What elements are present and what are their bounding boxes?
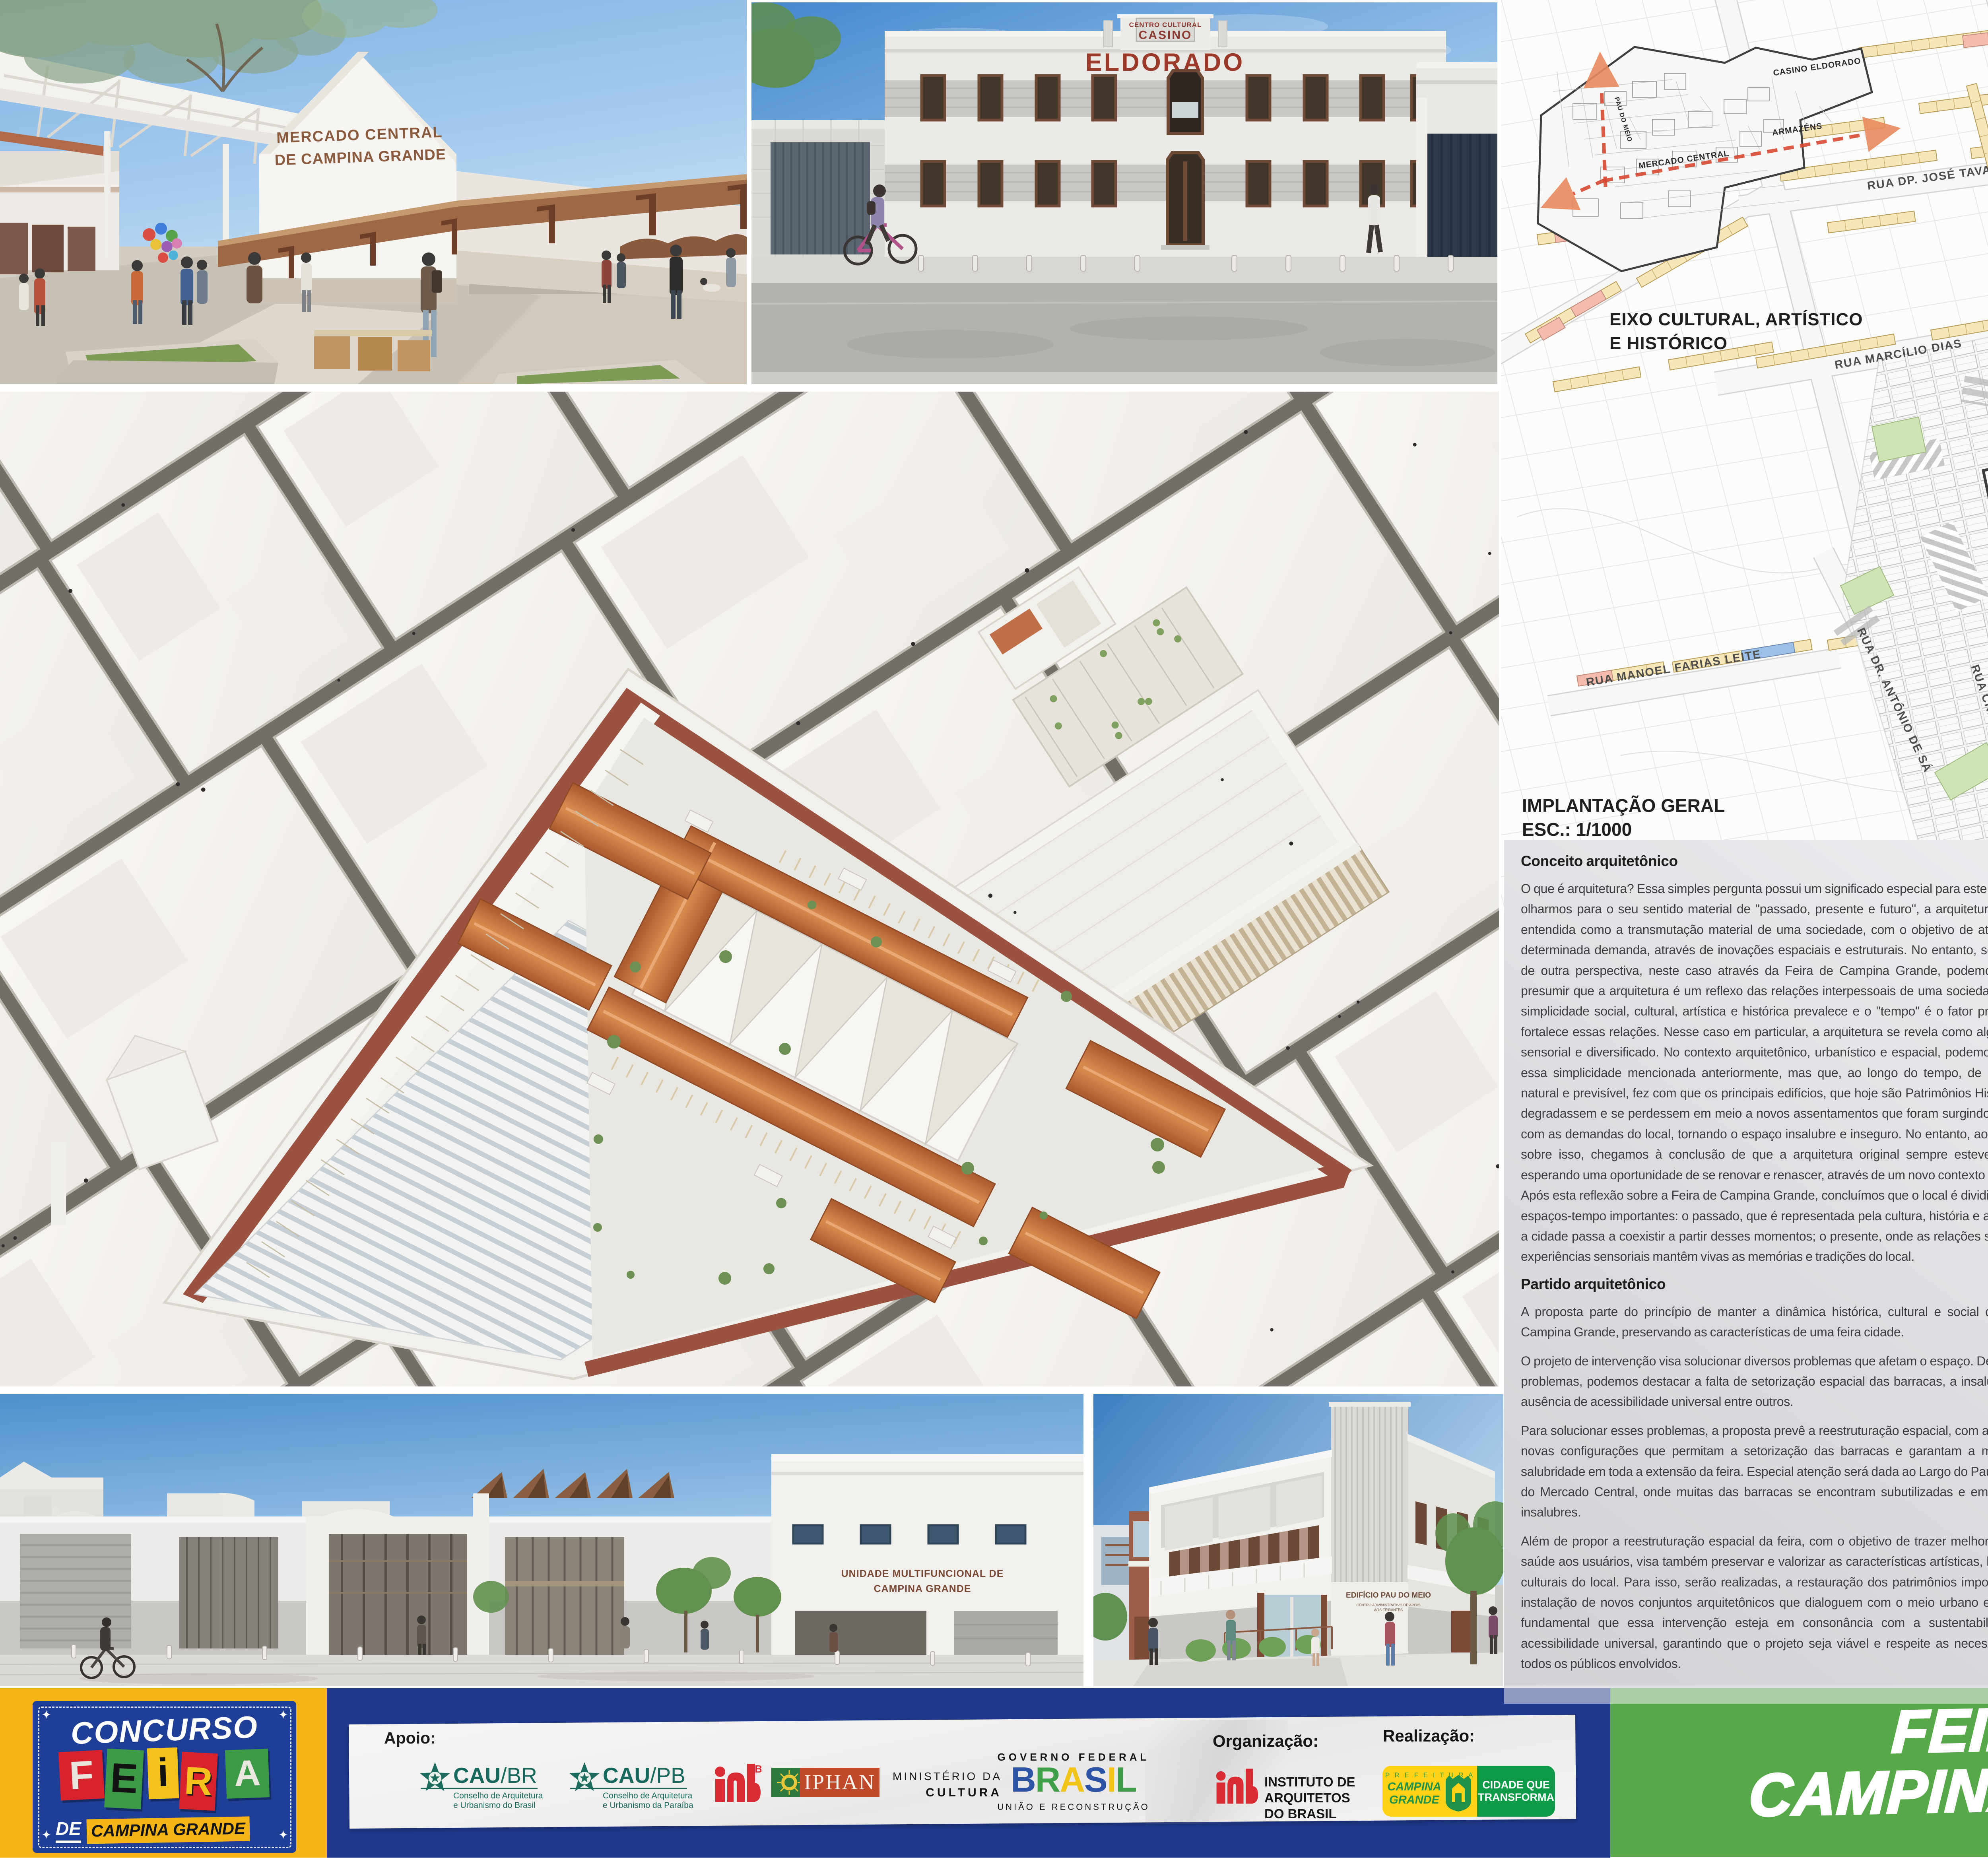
svg-text:e Urbanismo do Brasil: e Urbanismo do Brasil [453,1801,536,1809]
svg-text:ESC.: 1/1000: ESC.: 1/1000 [1522,819,1632,840]
svg-text:e Urbanismo da Paraíba: e Urbanismo da Paraíba [603,1801,693,1809]
svg-text:UNIDADE MULTIFUNCIONAL DE: UNIDADE MULTIFUNCIONAL DE [841,1568,1004,1579]
svg-text:Conselho de Arquitetura: Conselho de Arquitetura [453,1791,543,1800]
svg-text:EIXO CULTURAL, ARTÍSTICO: EIXO CULTURAL, ARTÍSTICO [1609,309,1863,329]
svg-text:CAMPINA GRANDE: CAMPINA GRANDE [874,1583,971,1594]
svg-text:CASINO: CASINO [1139,29,1192,42]
svg-text:PB: PB [748,1763,761,1775]
svg-text:AOS FEIRANTES: AOS FEIRANTES [1374,1608,1403,1612]
svg-text:E HISTÓRICO: E HISTÓRICO [1609,333,1728,353]
svg-text:EDIFÍCIO PAU DO MEIO: EDIFÍCIO PAU DO MEIO [1346,1591,1431,1600]
svg-text:CENTRO ADMINISTRATIVO DE APOIO: CENTRO ADMINISTRATIVO DE APOIO [1356,1603,1420,1607]
svg-text:IMPLANTAÇÃO GERAL: IMPLANTAÇÃO GERAL [1522,795,1725,816]
svg-text:ELDORADO: ELDORADO [1085,49,1245,76]
svg-text:CAU/BR: CAU/BR [453,1763,537,1788]
svg-text:CENTRO CULTURAL: CENTRO CULTURAL [1129,21,1202,29]
svg-text:Conselho de Arquitetura: Conselho de Arquitetura [603,1791,693,1800]
svg-text:CAU/PB: CAU/PB [603,1763,685,1788]
